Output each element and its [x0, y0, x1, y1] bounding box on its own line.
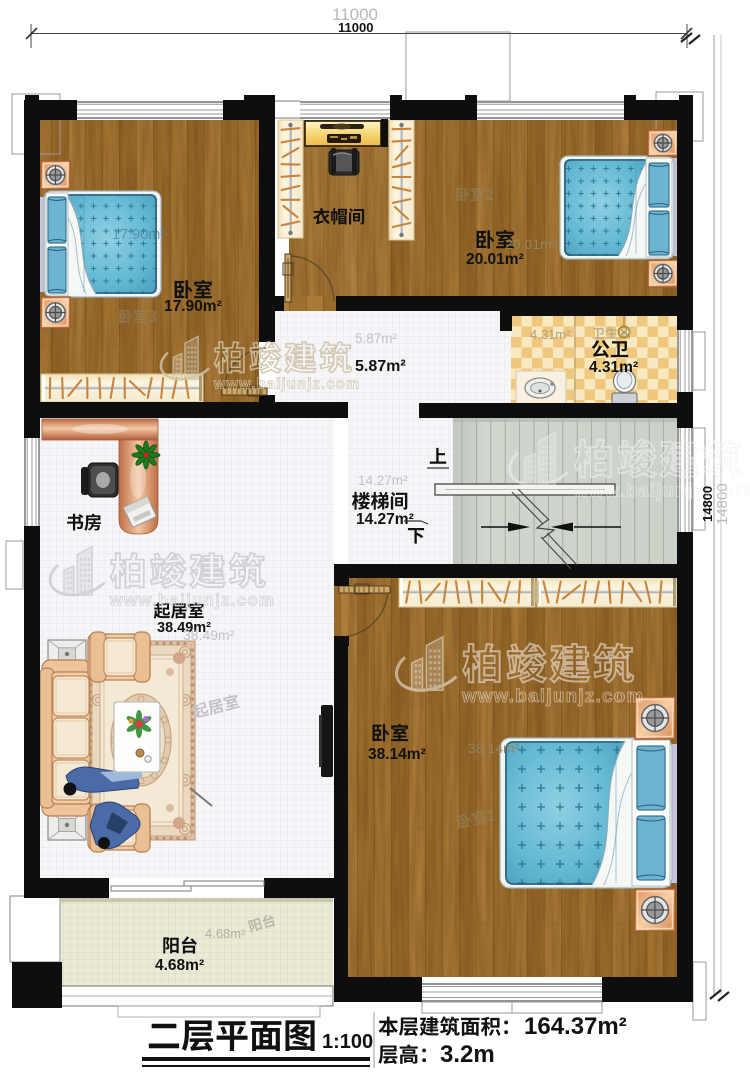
- svg-text:38.14m²: 38.14m²: [468, 740, 520, 756]
- svg-text:www.baijunjz.com: www.baijunjz.com: [213, 377, 361, 393]
- svg-text:3.2m: 3.2m: [440, 1041, 495, 1068]
- svg-text:20.01m²: 20.01m²: [505, 236, 557, 252]
- svg-text:14.27m²: 14.27m²: [358, 473, 408, 488]
- svg-text:164.37m²: 164.37m²: [524, 1013, 627, 1040]
- svg-text:www.baijunjz.com: www.baijunjz.com: [109, 591, 275, 610]
- svg-text:14.27m²: 14.27m²: [356, 511, 414, 528]
- svg-text:5.87m²: 5.87m²: [355, 358, 406, 375]
- svg-text:4.31m²: 4.31m²: [530, 327, 571, 342]
- svg-text:www.baijunjz.com: www.baijunjz.com: [461, 685, 644, 706]
- svg-text:4.31m²: 4.31m²: [589, 359, 638, 376]
- svg-text:11000: 11000: [338, 20, 373, 35]
- svg-text:5.87m²: 5.87m²: [355, 331, 398, 346]
- svg-text:1:100: 1:100: [322, 1031, 373, 1053]
- svg-text:www.baijunjz.com: www.baijunjz.com: [573, 481, 750, 501]
- svg-text:17.90m²: 17.90m²: [112, 227, 165, 243]
- svg-text:38.14m²: 38.14m²: [368, 746, 426, 763]
- svg-text:20.01m²: 20.01m²: [466, 251, 524, 268]
- svg-text:4.68m²: 4.68m²: [205, 926, 246, 941]
- svg-text:17.90m²: 17.90m²: [164, 298, 222, 315]
- svg-text:38.49m²: 38.49m²: [183, 627, 235, 643]
- svg-text:4.68m²: 4.68m²: [155, 957, 204, 974]
